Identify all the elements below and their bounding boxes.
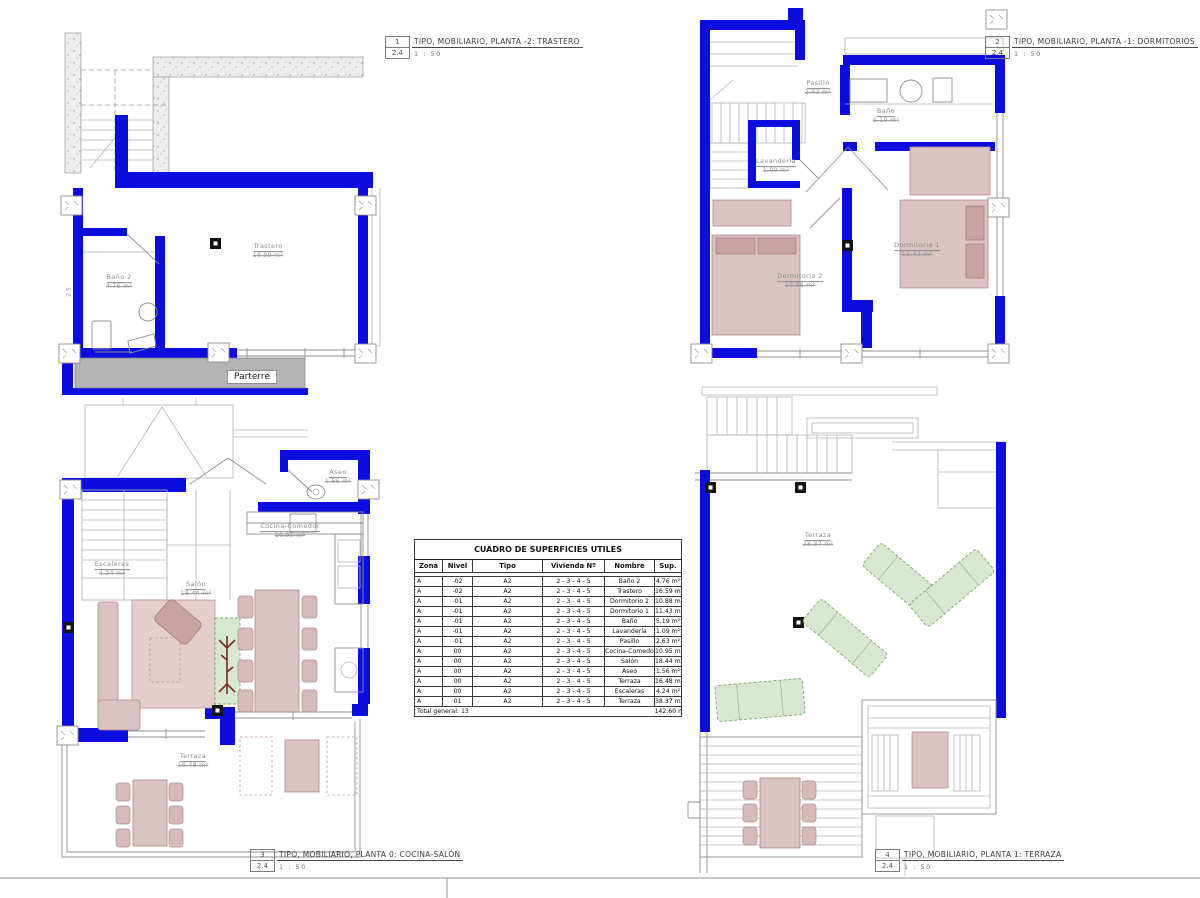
table-row: A-02A22 - 3 - 4 - 5Baño 24.76 m² [415,577,682,587]
plan3-drawing [57,398,379,857]
table-row: A-01A22 - 3 - 4 - 5Dormitorio 210.88 m² [415,597,682,607]
sheet-frame-line [0,878,1200,898]
table-row: A00A22 - 3 - 4 - 5Terraza16.48 m² [415,677,682,687]
deck-dining-set [743,778,816,848]
table-row: A-01A22 - 3 - 4 - 5Pasillo2.63 m² [415,637,682,647]
table-row: A01A22 - 3 - 4 - 5Terraza38.37 m² [415,697,682,707]
col-header-nombre: Nombre [605,560,655,573]
bath-cabinet [933,78,952,102]
toilet [92,321,111,349]
plan1-drawing [59,33,380,395]
parterre-area [75,358,305,388]
floor-plan-drawing [0,0,1200,898]
stairs-plan4 [707,397,792,435]
col-header-tipo: Tipo [473,560,543,573]
concrete-retaining-wall [65,33,363,173]
stairs-plan3 [82,490,167,600]
table-row: A-02A22 - 3 - 4 - 5Trastero16.59 m² [415,587,682,597]
dining-table [255,590,299,712]
sun-loungers [715,542,996,722]
table-row: A-01A22 - 3 - 4 - 5Lavandería1.09 m² [415,627,682,637]
door-leaf [127,234,159,264]
table-row: A-01A22 - 3 - 4 - 5Baño5.19 m² [415,617,682,627]
col-header-nivel: Nivel [443,560,473,573]
total-value: 142.60 m² [655,707,682,717]
window-band [237,348,358,358]
plan2-drawing [691,8,1009,363]
stairs-landing [706,42,798,100]
table-total-row: Total general: 13 142.60 m² [415,707,682,717]
terrace-table [133,780,167,846]
floor-plan-sheet: Baño 2 4.76 m² Trastero 16.59 m² Parterr… [0,0,1200,898]
col-header-sup: Sup. [655,560,682,573]
table-row: A00A22 - 3 - 4 - 5Aseo1.56 m² [415,667,682,677]
bedroom2-furniture [712,200,800,335]
table-row: A00A22 - 3 - 4 - 5Salón18.44 m² [415,657,682,667]
aseo-sink [307,485,325,499]
plan4-drawing [688,387,1006,876]
table-row: A-01A22 - 3 - 4 - 5Dormitorio 111.43 m² [415,607,682,617]
entry-doors [190,458,266,484]
lounge-seating-block [862,700,996,814]
total-label: Total general: 13 [415,707,655,717]
col-header-zona: Zona [415,560,443,573]
terrace-furniture-plan3 [116,737,357,847]
table-title: CUADRO DE SUPERFICIES UTILES [415,540,682,560]
table-header-row: Zona Nivel Tipo Vivienda Nº Nombre Sup. [415,560,682,573]
table-row: A00A22 - 3 - 4 - 5Cocina-Comedor10.95 m² [415,647,682,657]
shower [850,79,887,102]
shower-drain [139,303,157,321]
bedroom1-furniture [900,147,990,288]
col-header-vivienda: Vivienda Nº [543,560,605,573]
table-row: A00A22 - 3 - 4 - 5Escaleras4.24 m² [415,687,682,697]
surface-table-rows: A-02A22 - 3 - 4 - 5Baño 24.76 m²A-02A22 … [415,577,682,707]
bath-sink [900,80,922,102]
surfaces-table: CUADRO DE SUPERFICIES UTILES Zona Nivel … [414,539,682,717]
